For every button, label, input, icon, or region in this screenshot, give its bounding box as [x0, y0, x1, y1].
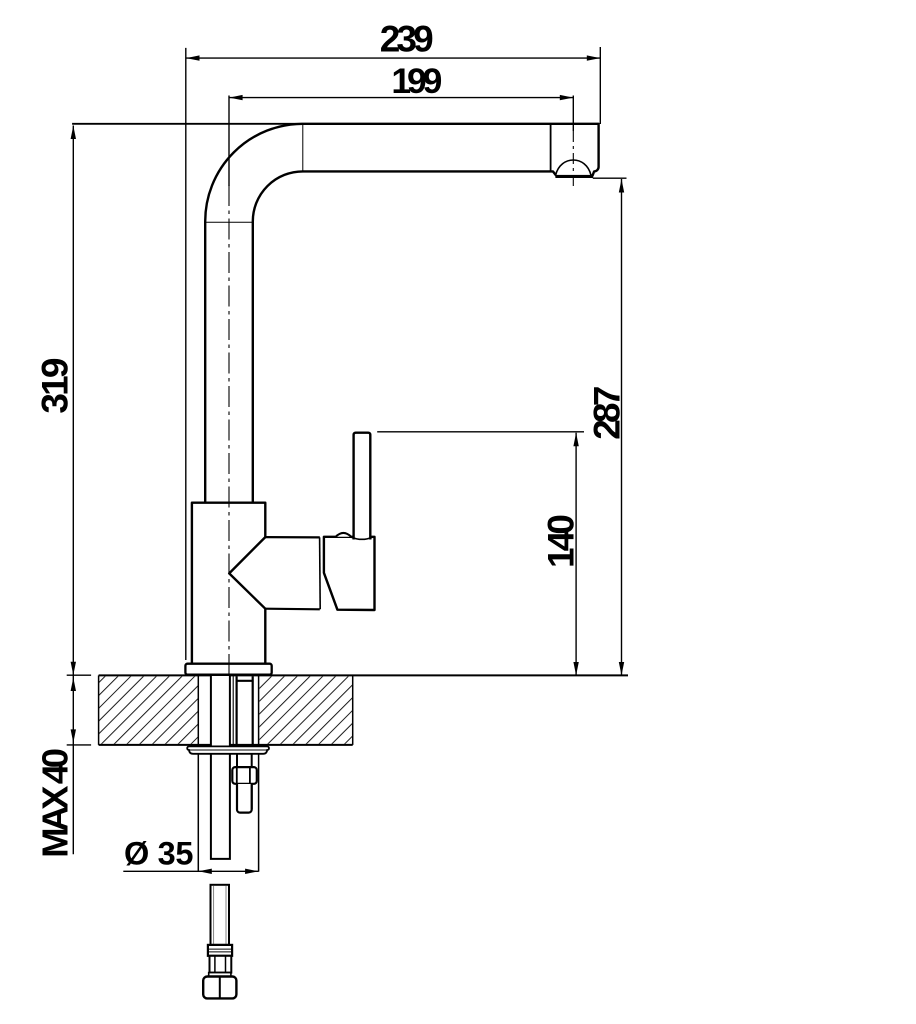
svg-text:239: 239: [380, 19, 434, 60]
svg-text:199: 199: [391, 61, 442, 101]
svg-text:287: 287: [586, 386, 627, 440]
svg-text:MAX 40: MAX 40: [35, 748, 76, 858]
svg-text:Ø 35: Ø 35: [124, 835, 194, 871]
svg-text:140: 140: [540, 514, 581, 568]
svg-text:319: 319: [34, 358, 75, 414]
